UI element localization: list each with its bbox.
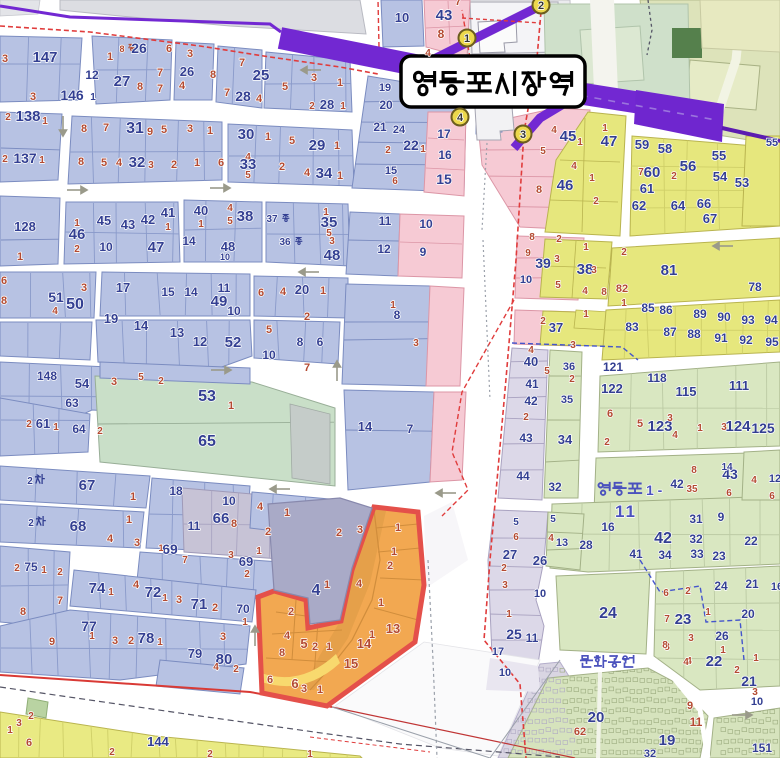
svg-text:15: 15 xyxy=(436,171,452,187)
svg-text:2: 2 xyxy=(97,426,103,437)
svg-text:93: 93 xyxy=(741,313,755,327)
svg-text:1: 1 xyxy=(326,641,332,653)
svg-text:1: 1 xyxy=(391,546,397,558)
svg-text:1: 1 xyxy=(324,579,330,591)
svg-text:58: 58 xyxy=(658,141,672,156)
svg-text:2: 2 xyxy=(523,412,529,423)
svg-text:52: 52 xyxy=(225,334,242,351)
svg-text:1: 1 xyxy=(464,33,470,45)
svg-text:94: 94 xyxy=(764,313,778,327)
svg-text:26: 26 xyxy=(180,64,194,79)
svg-text:33: 33 xyxy=(690,547,704,561)
svg-text:15: 15 xyxy=(161,285,175,299)
svg-text:3: 3 xyxy=(311,72,317,84)
svg-text:1 -: 1 - xyxy=(646,482,663,498)
svg-text:36: 36 xyxy=(279,237,291,248)
svg-text:26: 26 xyxy=(715,629,729,643)
svg-text:8: 8 xyxy=(529,232,535,243)
svg-text:3: 3 xyxy=(112,635,118,647)
svg-text:45: 45 xyxy=(560,128,577,145)
svg-text:2: 2 xyxy=(593,196,599,207)
svg-text:71: 71 xyxy=(191,596,208,613)
svg-text:3: 3 xyxy=(220,631,226,643)
svg-text:1: 1 xyxy=(207,125,213,137)
svg-text:3: 3 xyxy=(187,48,193,60)
svg-text:60: 60 xyxy=(644,164,661,181)
svg-text:89: 89 xyxy=(693,307,707,321)
svg-text:2: 2 xyxy=(14,563,20,574)
svg-text:2: 2 xyxy=(5,112,11,123)
svg-text:2: 2 xyxy=(621,247,627,258)
svg-text:61: 61 xyxy=(640,181,654,196)
svg-text:3: 3 xyxy=(413,338,419,349)
svg-text:78: 78 xyxy=(748,280,762,294)
svg-text:3: 3 xyxy=(187,123,193,135)
svg-text:8: 8 xyxy=(297,335,304,349)
svg-text:2: 2 xyxy=(26,419,32,430)
svg-text:3: 3 xyxy=(111,376,117,388)
svg-text:91: 91 xyxy=(714,331,728,345)
svg-text:45: 45 xyxy=(97,213,111,228)
svg-text:4: 4 xyxy=(548,533,554,544)
svg-text:2: 2 xyxy=(501,563,507,574)
svg-text:2: 2 xyxy=(171,159,177,171)
svg-text:2: 2 xyxy=(538,0,544,12)
svg-text:4: 4 xyxy=(107,533,114,545)
svg-text:4: 4 xyxy=(457,112,464,124)
svg-text:7: 7 xyxy=(103,122,109,134)
svg-text:9: 9 xyxy=(687,700,693,712)
svg-text:1: 1 xyxy=(320,285,326,297)
svg-text:20: 20 xyxy=(741,607,755,621)
svg-text:3: 3 xyxy=(134,537,140,549)
svg-text:6: 6 xyxy=(166,43,172,55)
svg-text:5: 5 xyxy=(266,324,272,336)
svg-text:14: 14 xyxy=(358,419,373,434)
svg-text:144: 144 xyxy=(147,734,169,749)
svg-text:16: 16 xyxy=(601,520,615,534)
svg-text:46: 46 xyxy=(557,177,574,194)
svg-text:3: 3 xyxy=(301,683,307,695)
svg-text:70: 70 xyxy=(236,602,250,616)
svg-text:7: 7 xyxy=(182,555,188,566)
svg-text:67: 67 xyxy=(79,477,96,494)
svg-text:59: 59 xyxy=(635,137,649,152)
svg-text:6: 6 xyxy=(267,674,273,686)
svg-text:147: 147 xyxy=(32,49,57,66)
svg-text:2: 2 xyxy=(212,602,218,614)
svg-text:24: 24 xyxy=(714,579,728,593)
svg-text:10: 10 xyxy=(99,240,113,254)
svg-text:37: 37 xyxy=(549,320,563,335)
svg-text:1: 1 xyxy=(583,309,589,320)
svg-text:8: 8 xyxy=(279,647,285,659)
svg-text:8: 8 xyxy=(438,27,445,41)
svg-text:6: 6 xyxy=(513,532,519,543)
svg-text:12: 12 xyxy=(193,334,207,349)
svg-text:1: 1 xyxy=(165,222,171,233)
svg-text:5: 5 xyxy=(227,216,233,227)
svg-text:28: 28 xyxy=(320,97,334,112)
svg-text:115: 115 xyxy=(676,384,697,399)
svg-text:10: 10 xyxy=(395,10,409,25)
svg-text:3: 3 xyxy=(30,91,36,103)
svg-text:25: 25 xyxy=(506,626,522,642)
svg-text:4: 4 xyxy=(551,125,557,136)
svg-text:30: 30 xyxy=(238,126,255,143)
svg-text:34: 34 xyxy=(658,548,672,562)
svg-text:1: 1 xyxy=(7,725,13,736)
svg-text:1: 1 xyxy=(284,507,290,519)
svg-text:1: 1 xyxy=(317,684,323,696)
svg-text:8: 8 xyxy=(210,69,216,81)
svg-text:3: 3 xyxy=(591,265,597,276)
svg-text:20: 20 xyxy=(295,282,309,297)
svg-text:53: 53 xyxy=(735,175,749,190)
svg-text:12: 12 xyxy=(377,242,391,256)
svg-text:2: 2 xyxy=(158,376,164,387)
svg-text:1: 1 xyxy=(126,514,132,526)
svg-text:44: 44 xyxy=(516,469,530,483)
svg-text:7: 7 xyxy=(304,362,310,374)
svg-text:5: 5 xyxy=(101,157,107,169)
svg-text:1: 1 xyxy=(158,543,163,553)
svg-text:7: 7 xyxy=(157,67,163,79)
svg-text:47: 47 xyxy=(601,133,618,150)
svg-text:65: 65 xyxy=(198,433,216,450)
svg-text:64: 64 xyxy=(72,422,86,436)
svg-text:1: 1 xyxy=(420,144,426,155)
svg-text:8: 8 xyxy=(601,287,607,298)
svg-text:1: 1 xyxy=(583,242,589,253)
svg-text:40: 40 xyxy=(194,203,208,218)
svg-text:47: 47 xyxy=(148,239,165,256)
svg-text:7: 7 xyxy=(664,614,670,625)
svg-text:7: 7 xyxy=(224,87,230,99)
svg-text:14: 14 xyxy=(721,462,733,473)
svg-text:118: 118 xyxy=(647,371,667,385)
svg-text:49: 49 xyxy=(211,293,228,310)
svg-text:5: 5 xyxy=(540,146,546,157)
svg-text:41: 41 xyxy=(629,547,643,561)
svg-text:13: 13 xyxy=(170,325,184,340)
svg-text:41: 41 xyxy=(161,205,175,220)
svg-text:92: 92 xyxy=(739,333,753,347)
svg-text:5: 5 xyxy=(637,418,643,430)
svg-text:1: 1 xyxy=(705,607,711,618)
svg-text:1: 1 xyxy=(256,546,262,557)
svg-text:21: 21 xyxy=(745,577,759,591)
svg-text:55: 55 xyxy=(712,148,726,163)
svg-text:23: 23 xyxy=(712,549,726,563)
svg-text:2: 2 xyxy=(74,244,80,255)
svg-text:2: 2 xyxy=(734,665,740,676)
svg-text:2: 2 xyxy=(556,234,562,245)
svg-text:2: 2 xyxy=(604,437,610,448)
svg-text:90: 90 xyxy=(717,310,731,324)
svg-text:3: 3 xyxy=(148,160,154,171)
svg-text:31: 31 xyxy=(689,512,703,526)
svg-text:10: 10 xyxy=(534,588,546,600)
svg-text:10: 10 xyxy=(222,494,236,508)
svg-text:8: 8 xyxy=(81,123,87,135)
svg-text:2: 2 xyxy=(309,101,315,112)
svg-text:2: 2 xyxy=(288,606,294,618)
svg-text:41: 41 xyxy=(525,377,539,391)
svg-text:51: 51 xyxy=(48,289,64,305)
svg-text:7: 7 xyxy=(638,167,644,178)
svg-text:6: 6 xyxy=(26,737,32,749)
svg-text:3: 3 xyxy=(667,413,673,424)
svg-text:5: 5 xyxy=(550,514,556,525)
svg-text:29: 29 xyxy=(309,137,326,154)
svg-text:63: 63 xyxy=(65,396,79,410)
svg-text:46: 46 xyxy=(69,226,86,243)
svg-text:42: 42 xyxy=(654,530,672,547)
svg-text:34: 34 xyxy=(558,432,573,447)
svg-text:4: 4 xyxy=(116,157,123,169)
svg-text:4: 4 xyxy=(356,578,363,590)
svg-text:6: 6 xyxy=(726,488,732,499)
svg-text:10: 10 xyxy=(499,667,511,679)
svg-text:83: 83 xyxy=(625,320,639,334)
svg-text:21: 21 xyxy=(373,120,387,134)
svg-text:4: 4 xyxy=(683,657,689,668)
svg-text:38: 38 xyxy=(237,208,254,225)
svg-text:10: 10 xyxy=(751,696,763,708)
svg-text:3: 3 xyxy=(554,254,560,265)
svg-text:26: 26 xyxy=(131,40,147,56)
svg-text:1: 1 xyxy=(334,140,340,152)
svg-text:128: 128 xyxy=(14,219,36,234)
svg-text:64: 64 xyxy=(671,198,686,213)
svg-text:13: 13 xyxy=(386,621,400,636)
svg-text:67: 67 xyxy=(703,211,717,226)
svg-text:1: 1 xyxy=(107,51,113,63)
svg-text:1: 1 xyxy=(90,92,96,103)
svg-text:32: 32 xyxy=(689,532,703,546)
svg-text:6: 6 xyxy=(218,157,224,169)
svg-text:4: 4 xyxy=(751,475,757,486)
svg-text:18: 18 xyxy=(169,484,183,498)
svg-text:7: 7 xyxy=(239,57,245,69)
svg-text:32: 32 xyxy=(129,154,146,171)
svg-text:48: 48 xyxy=(324,247,341,264)
svg-text:5: 5 xyxy=(138,372,144,383)
svg-text:11: 11 xyxy=(526,631,539,645)
svg-text:8: 8 xyxy=(119,44,124,54)
svg-text:3: 3 xyxy=(329,236,335,247)
svg-text:39: 39 xyxy=(535,255,551,271)
svg-text:81: 81 xyxy=(661,262,678,279)
svg-text:1: 1 xyxy=(395,522,401,534)
svg-text:11: 11 xyxy=(690,715,703,729)
svg-text:6: 6 xyxy=(1,275,7,287)
svg-text:55: 55 xyxy=(766,137,778,149)
svg-text:16: 16 xyxy=(771,581,780,593)
svg-text:3: 3 xyxy=(2,53,8,65)
svg-text:50: 50 xyxy=(66,296,84,313)
svg-text:4: 4 xyxy=(582,286,588,297)
svg-text:5: 5 xyxy=(245,170,251,181)
svg-text:43: 43 xyxy=(436,7,453,24)
svg-text:2: 2 xyxy=(57,567,63,578)
svg-text:14: 14 xyxy=(357,636,372,651)
svg-text:3: 3 xyxy=(570,340,576,351)
svg-text:69: 69 xyxy=(162,541,178,557)
svg-text:14: 14 xyxy=(184,285,198,299)
svg-text:121: 121 xyxy=(603,360,623,374)
svg-text:4: 4 xyxy=(425,48,431,59)
svg-text:43: 43 xyxy=(121,217,135,232)
svg-text:9: 9 xyxy=(420,245,427,259)
svg-text:23: 23 xyxy=(675,611,692,628)
svg-text:3: 3 xyxy=(520,129,526,141)
svg-text:10: 10 xyxy=(419,217,433,231)
svg-text:9: 9 xyxy=(718,510,725,524)
svg-text:2: 2 xyxy=(304,311,310,323)
svg-text:146: 146 xyxy=(60,87,84,103)
svg-text:13: 13 xyxy=(556,537,568,549)
svg-text:62: 62 xyxy=(632,198,646,213)
svg-text:8: 8 xyxy=(137,81,143,93)
svg-text:2: 2 xyxy=(207,749,213,758)
svg-text:4: 4 xyxy=(133,579,140,591)
svg-text:1: 1 xyxy=(42,116,48,127)
svg-text:1: 1 xyxy=(41,565,47,576)
svg-text:10: 10 xyxy=(220,252,230,262)
svg-text:2: 2 xyxy=(28,711,34,722)
svg-text:10: 10 xyxy=(262,348,276,362)
svg-text:2: 2 xyxy=(265,526,271,538)
svg-text:27: 27 xyxy=(114,73,131,90)
svg-text:10: 10 xyxy=(520,274,532,286)
svg-text:1: 1 xyxy=(39,155,45,166)
svg-text:24: 24 xyxy=(393,124,406,136)
svg-text:42: 42 xyxy=(670,477,684,491)
svg-text:66: 66 xyxy=(213,510,230,527)
svg-text:25: 25 xyxy=(253,67,270,84)
svg-text:4: 4 xyxy=(213,662,219,673)
svg-text:4: 4 xyxy=(179,80,186,92)
svg-text:1: 1 xyxy=(621,298,627,309)
svg-text:27: 27 xyxy=(503,547,517,562)
svg-text:20: 20 xyxy=(588,709,605,726)
svg-text:40: 40 xyxy=(524,354,538,369)
svg-text:32: 32 xyxy=(548,480,562,494)
svg-text:19: 19 xyxy=(659,732,676,749)
svg-text:1: 1 xyxy=(307,749,313,758)
svg-text:6: 6 xyxy=(392,176,398,187)
svg-text:43: 43 xyxy=(519,431,533,445)
svg-text:2: 2 xyxy=(685,586,691,597)
svg-text:148: 148 xyxy=(37,369,57,383)
svg-text:5: 5 xyxy=(513,517,519,528)
svg-text:7: 7 xyxy=(455,0,461,8)
svg-text:4: 4 xyxy=(304,167,311,179)
svg-text:19: 19 xyxy=(104,311,118,326)
svg-text:22: 22 xyxy=(706,653,723,670)
svg-text:61: 61 xyxy=(36,416,50,431)
svg-text:42: 42 xyxy=(141,212,155,227)
svg-text:9: 9 xyxy=(147,126,153,138)
svg-text:4: 4 xyxy=(257,501,264,513)
svg-text:2: 2 xyxy=(387,560,393,572)
svg-text:56: 56 xyxy=(680,158,697,175)
svg-text:28: 28 xyxy=(579,538,593,552)
svg-text:54: 54 xyxy=(75,376,90,391)
svg-text:85: 85 xyxy=(641,301,655,315)
svg-text:8: 8 xyxy=(691,465,697,476)
svg-text:26: 26 xyxy=(533,553,547,568)
svg-text:42: 42 xyxy=(524,394,538,408)
svg-text:6: 6 xyxy=(663,588,669,599)
svg-text:3: 3 xyxy=(228,550,234,561)
svg-text:4: 4 xyxy=(571,161,577,172)
svg-text:19: 19 xyxy=(379,82,391,94)
svg-text:3: 3 xyxy=(357,524,363,536)
svg-text:1: 1 xyxy=(577,137,583,148)
svg-text:11: 11 xyxy=(615,502,637,521)
svg-text:2: 2 xyxy=(109,747,115,758)
svg-text:3: 3 xyxy=(16,718,22,729)
svg-text:9: 9 xyxy=(525,248,531,259)
svg-text:111: 111 xyxy=(729,378,749,393)
svg-text:1: 1 xyxy=(89,631,95,642)
svg-text:7: 7 xyxy=(57,595,63,607)
svg-text:2: 2 xyxy=(279,161,285,173)
svg-text:87: 87 xyxy=(663,325,677,339)
svg-text:5: 5 xyxy=(282,81,288,93)
svg-text:5: 5 xyxy=(300,636,307,651)
svg-text:151: 151 xyxy=(752,741,772,755)
svg-text:15: 15 xyxy=(344,656,358,671)
svg-text:1: 1 xyxy=(340,101,346,112)
svg-text:4: 4 xyxy=(227,203,233,214)
svg-text:1: 1 xyxy=(108,587,114,598)
svg-text:5: 5 xyxy=(544,366,550,377)
svg-text:138: 138 xyxy=(15,108,40,125)
svg-text:2: 2 xyxy=(312,641,318,653)
svg-text:31: 31 xyxy=(126,120,144,137)
svg-text:6: 6 xyxy=(607,408,613,420)
svg-text:4: 4 xyxy=(256,93,263,105)
svg-text:37: 37 xyxy=(266,214,278,225)
svg-text:2: 2 xyxy=(244,569,250,580)
svg-text:66: 66 xyxy=(697,196,711,211)
svg-text:16: 16 xyxy=(438,148,452,162)
svg-text:35: 35 xyxy=(686,484,698,495)
svg-text:11: 11 xyxy=(379,214,392,228)
svg-text:137: 137 xyxy=(13,150,37,166)
svg-text:1: 1 xyxy=(753,653,759,664)
svg-text:3: 3 xyxy=(176,594,182,606)
svg-text:62: 62 xyxy=(574,726,586,738)
svg-text:1: 1 xyxy=(506,609,512,620)
svg-text:1: 1 xyxy=(198,219,204,230)
svg-text:2: 2 xyxy=(540,316,546,327)
svg-text:17: 17 xyxy=(492,646,504,658)
svg-text:1: 1 xyxy=(337,77,343,89)
svg-text:3: 3 xyxy=(688,633,694,644)
svg-text:2: 2 xyxy=(233,664,239,675)
svg-text:1: 1 xyxy=(697,423,703,434)
svg-text:6: 6 xyxy=(258,287,264,299)
svg-text:22: 22 xyxy=(744,534,758,548)
svg-text:5: 5 xyxy=(289,135,295,147)
svg-text:6: 6 xyxy=(291,676,298,691)
svg-text:2: 2 xyxy=(128,635,134,647)
